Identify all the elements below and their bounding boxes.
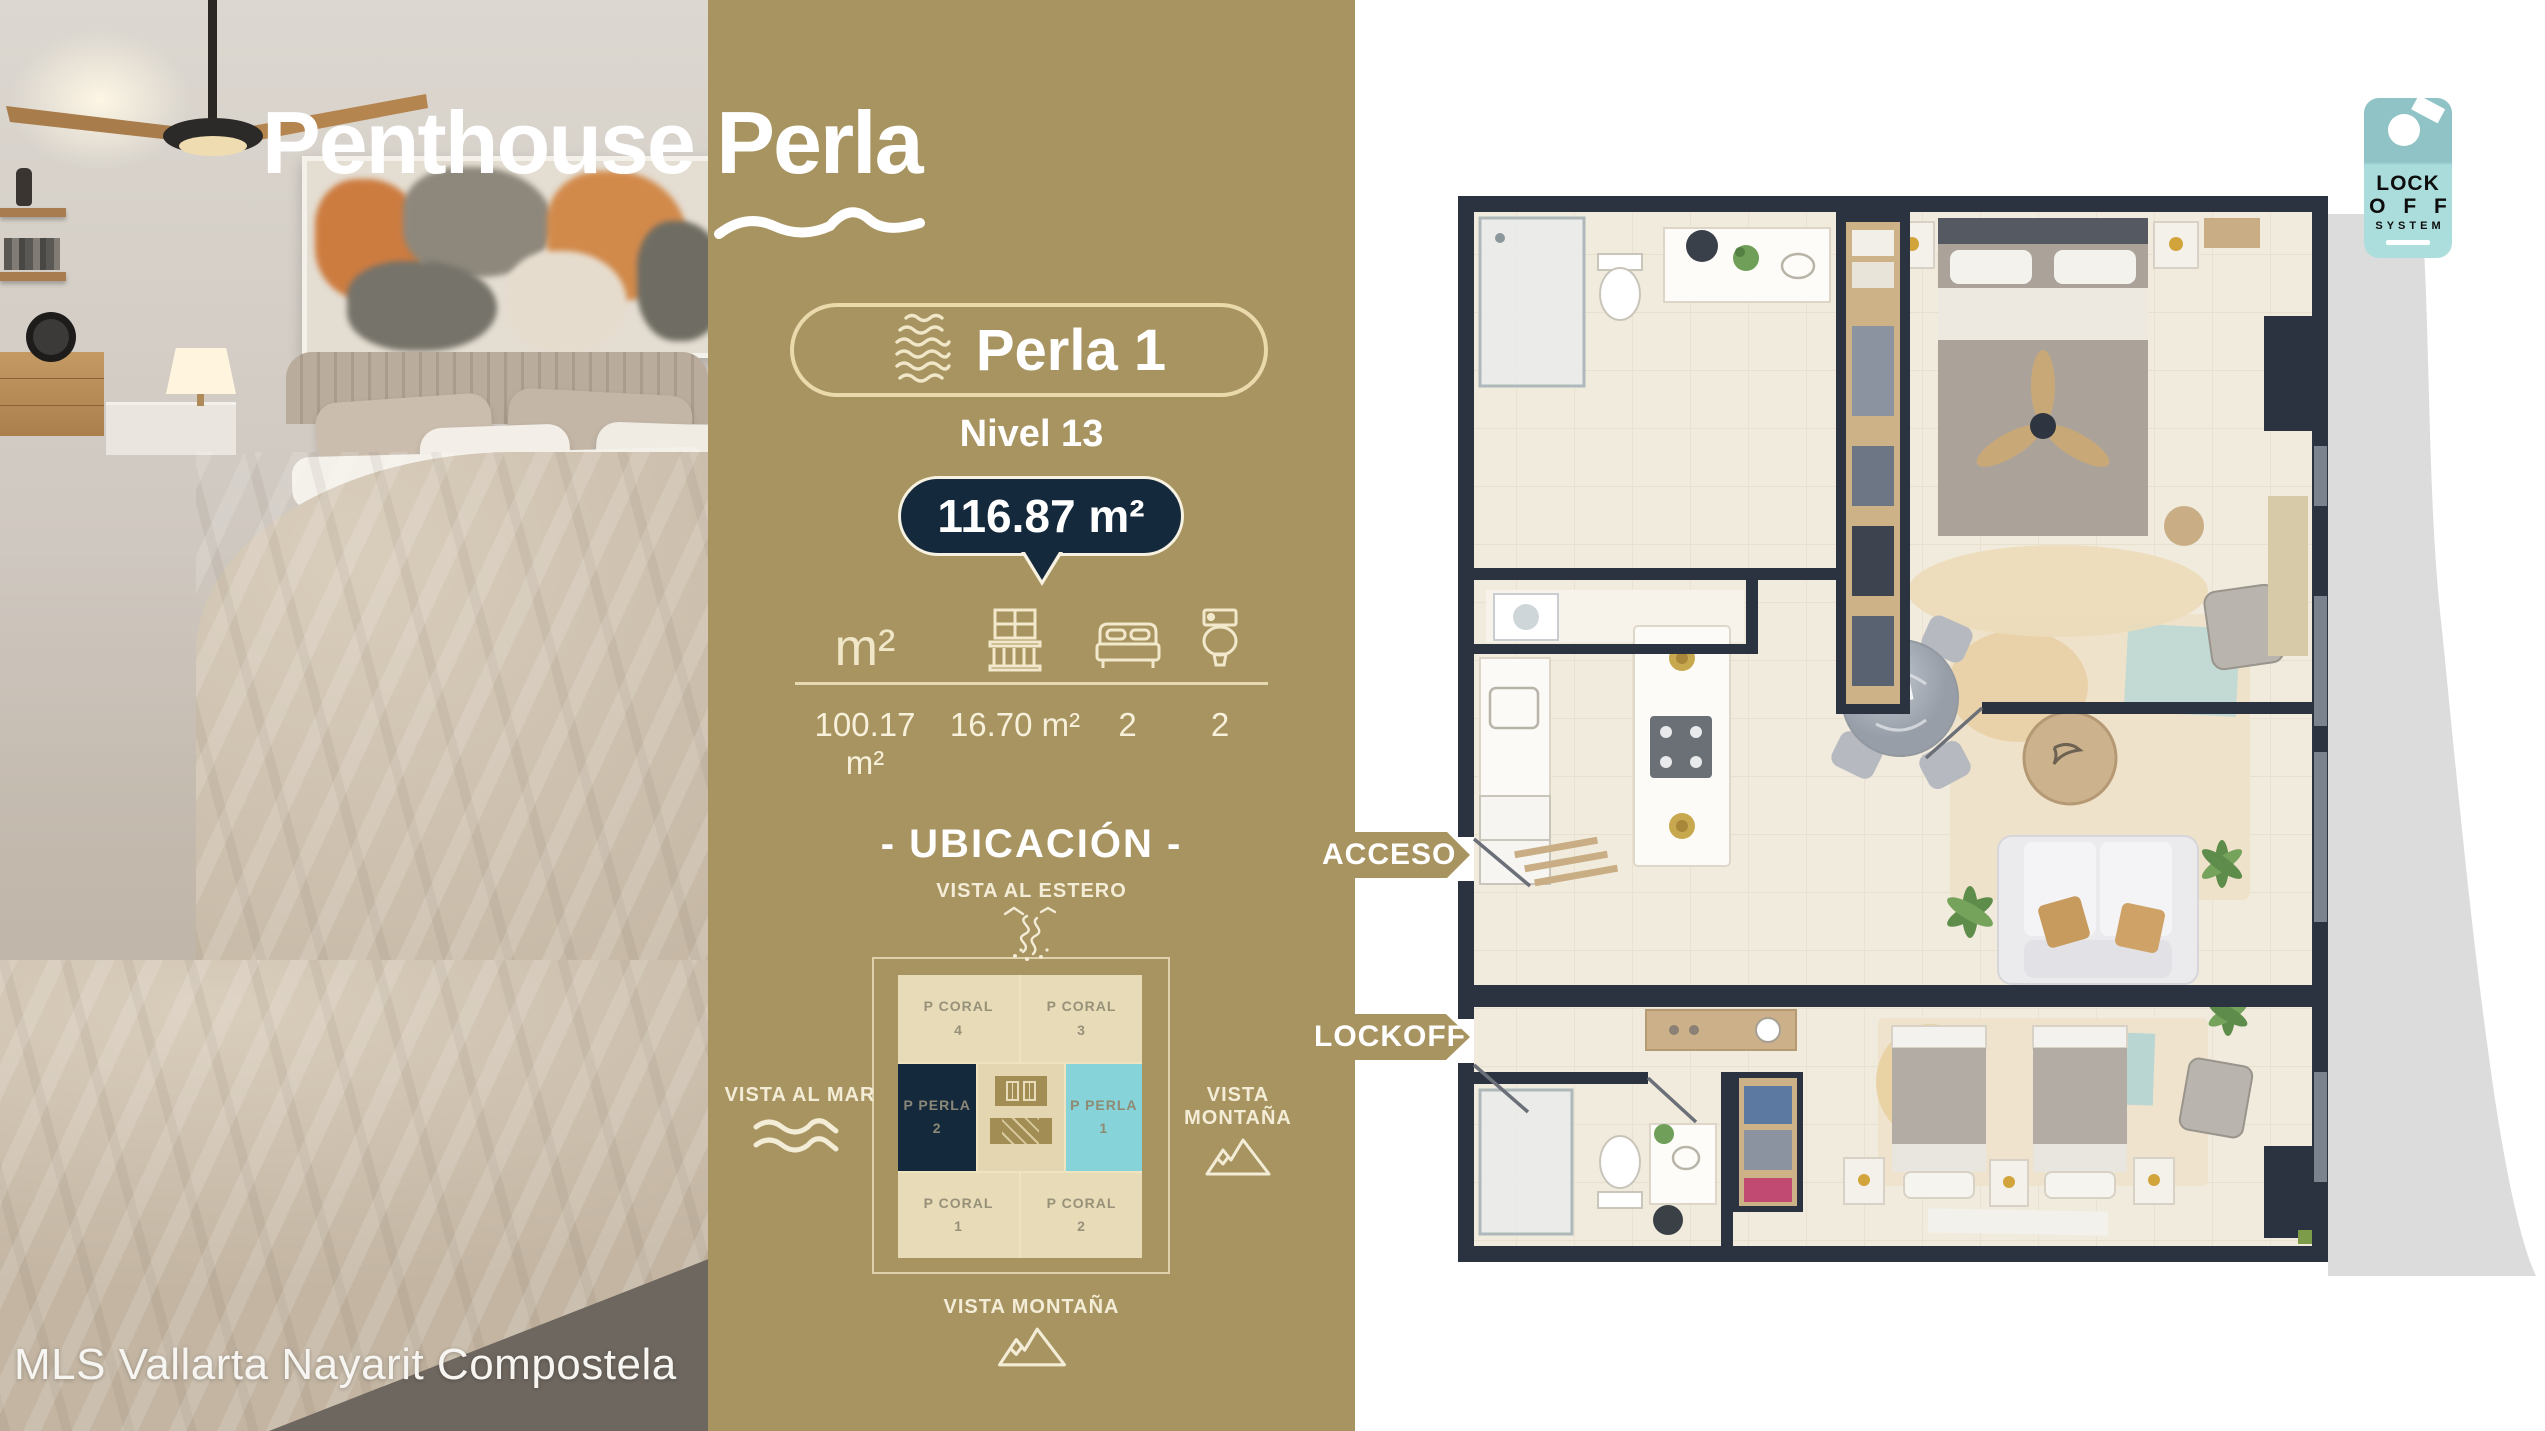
title-accent: Perla bbox=[716, 93, 921, 192]
stat-value-beds: 2 bbox=[1090, 706, 1165, 744]
brand-wave-icon bbox=[714, 198, 928, 248]
bedroom-photo bbox=[0, 0, 708, 1431]
location-heading: - UBICACIÓN - bbox=[708, 822, 1355, 867]
total-area-badge: 116.87 m² bbox=[898, 476, 1184, 556]
nightstand bbox=[106, 402, 236, 455]
tag-line-off: O F F bbox=[2362, 195, 2454, 219]
lockoff-vanity bbox=[1646, 1010, 1796, 1050]
access-callout: ACCESO bbox=[1306, 832, 1470, 878]
books bbox=[4, 238, 60, 270]
floor-plan bbox=[1458, 196, 2328, 1262]
view-label-mar: VISTA AL MAR bbox=[722, 1084, 878, 1155]
balcony-plant-strip bbox=[2298, 1230, 2312, 1244]
bedroom-console bbox=[2204, 218, 2260, 248]
mountain-icon bbox=[1203, 1136, 1273, 1178]
stats-divider bbox=[795, 682, 1268, 685]
location-diagram: P CORAL4 P CORAL3 P PERLA2 P PERLA1 P CO bbox=[898, 975, 1142, 1258]
stat-icon-terrace bbox=[940, 596, 1090, 672]
diagram-cell-p-coral-4: P CORAL4 bbox=[898, 975, 1019, 1062]
stat-icon-toilet bbox=[1175, 596, 1265, 672]
decor-vase bbox=[16, 168, 32, 206]
wall-shelf bbox=[0, 208, 66, 217]
view-label-montana-right: VISTA MONTAÑA bbox=[1160, 1084, 1316, 1178]
lockoff-wardrobe bbox=[1739, 1078, 1797, 1206]
toilet-icon bbox=[1198, 608, 1242, 672]
diagram-cell-p-perla-2: P PERLA2 bbox=[898, 1064, 976, 1170]
sea-waves-icon bbox=[752, 1113, 848, 1155]
diagram-cell-p-coral-3: P CORAL3 bbox=[1021, 975, 1142, 1062]
watermark-text: MLS Vallarta Nayarit Compostela bbox=[14, 1340, 677, 1390]
elevators-icon bbox=[995, 1076, 1047, 1106]
wave-stack-icon bbox=[892, 311, 956, 389]
clock bbox=[26, 312, 76, 362]
tag-line-lock: LOCK bbox=[2362, 172, 2454, 196]
diagram-cell-p-coral-2: P CORAL2 bbox=[1021, 1173, 1142, 1258]
flyer-page: Penthouse Perla Perla 1 Nivel 13 116.87 … bbox=[0, 0, 2545, 1431]
sofa bbox=[1998, 836, 2198, 984]
bed-icon bbox=[1094, 620, 1162, 672]
stairs-icon bbox=[990, 1118, 1052, 1144]
diagram-cell-p-perla-1: P PERLA1 bbox=[1066, 1064, 1142, 1170]
lockoff-tag-text: LOCK O F F SYSTEM bbox=[2362, 96, 2454, 260]
unit-level: Nivel 13 bbox=[708, 413, 1355, 456]
diagram-core bbox=[978, 1064, 1063, 1170]
lamp-stem bbox=[197, 394, 204, 406]
grey-swoosh-shape bbox=[2310, 200, 2545, 1285]
tag-line-system: SYSTEM bbox=[2362, 220, 2454, 232]
stat-icon-area: m² bbox=[795, 596, 935, 672]
view-label-estero: VISTA AL ESTERO bbox=[708, 880, 1355, 903]
view-label-montana-bottom: VISTA MONTAÑA bbox=[708, 1296, 1355, 1369]
wood-dresser bbox=[0, 352, 104, 436]
stat-value-area: 100.17 m² bbox=[795, 706, 935, 782]
side-table bbox=[2164, 506, 2204, 546]
lockoff-callout: LOCKOFF bbox=[1298, 1014, 1470, 1060]
unit-name-pill: Perla 1 bbox=[790, 303, 1268, 397]
table-lamp bbox=[166, 348, 236, 394]
lockoff-chair bbox=[2178, 1057, 2254, 1139]
mountain-icon bbox=[993, 1325, 1071, 1369]
wardrobe-shelves bbox=[1846, 222, 1900, 704]
title-main: Penthouse bbox=[262, 93, 694, 192]
tag-underline bbox=[2386, 240, 2430, 245]
badge-pointer-inner bbox=[1025, 552, 1059, 580]
total-area-value: 116.87 m² bbox=[937, 489, 1144, 543]
diagram-cell-p-coral-1: P CORAL1 bbox=[898, 1173, 1019, 1258]
terrace-icon bbox=[986, 608, 1044, 672]
estuary-icon bbox=[975, 906, 1085, 962]
stat-value-terrace: 16.70 m² bbox=[940, 706, 1090, 744]
wall-shelf bbox=[0, 272, 66, 281]
stat-icon-bed bbox=[1090, 596, 1165, 672]
square-meters-icon: m² bbox=[835, 625, 896, 672]
window-bench bbox=[2268, 496, 2308, 656]
stat-value-baths: 2 bbox=[1175, 706, 1265, 744]
page-title: Penthouse Perla bbox=[262, 92, 922, 194]
unit-name: Perla 1 bbox=[976, 317, 1166, 384]
